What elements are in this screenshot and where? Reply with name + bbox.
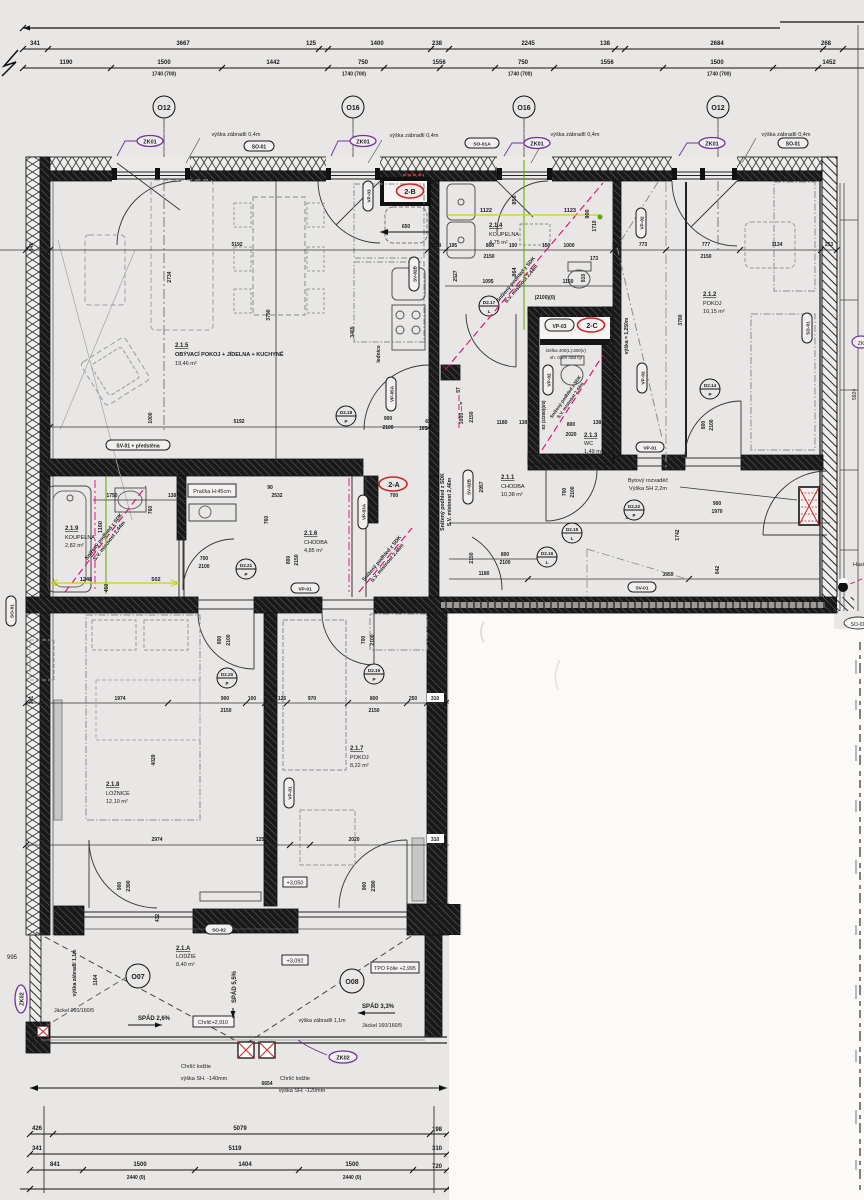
svg-text:3780: 3780 — [678, 314, 684, 325]
svg-text:1500: 1500 — [133, 1162, 147, 1168]
svg-text:238: 238 — [432, 41, 443, 47]
svg-text:970: 970 — [308, 696, 317, 702]
svg-text:L: L — [488, 309, 491, 314]
svg-text:165: 165 — [419, 426, 428, 432]
svg-text:ZK01: ZK01 — [705, 142, 718, 148]
svg-text:výška zábradlí 1,1m: výška zábradlí 1,1m — [298, 1018, 346, 1024]
svg-text:D2.15: D2.15 — [566, 527, 579, 532]
svg-text:ZK01: ZK01 — [356, 140, 369, 146]
svg-text:1180: 1180 — [479, 571, 490, 577]
svg-text:SPÁD 5,5%: SPÁD 5,5% — [231, 970, 238, 1003]
svg-text:1000: 1000 — [563, 243, 574, 249]
svg-text:2100: 2100 — [499, 560, 510, 566]
svg-text:800: 800 — [370, 696, 379, 702]
svg-text:2020: 2020 — [348, 837, 359, 843]
svg-text:1248: 1248 — [80, 577, 92, 583]
svg-text:ZK01: ZK01 — [143, 140, 156, 146]
svg-text:3790: 3790 — [266, 309, 272, 320]
svg-text:90: 90 — [267, 485, 273, 491]
svg-text:864: 864 — [512, 266, 518, 276]
svg-text:VP-03: VP-03 — [553, 324, 567, 330]
svg-text:lednice: lednice — [376, 345, 382, 362]
svg-text:841: 841 — [50, 1162, 61, 1168]
svg-text:1404: 1404 — [238, 1162, 252, 1168]
svg-text:2527: 2527 — [453, 270, 459, 281]
svg-text:8,40 m²: 8,40 m² — [176, 962, 195, 968]
svg-text:SPÁD 3,3%: SPÁD 3,3% — [362, 1003, 395, 1010]
svg-text:Chrlič lodžie: Chrlič lodžie — [181, 1064, 211, 1070]
svg-text:3667: 3667 — [176, 41, 190, 47]
svg-text:2684: 2684 — [710, 41, 724, 47]
svg-text:VP-02: VP-02 — [640, 216, 646, 230]
svg-text:900: 900 — [362, 882, 368, 891]
svg-text:2-B: 2-B — [404, 189, 415, 196]
svg-text:2020: 2020 — [565, 432, 576, 438]
svg-text:VP-03A: VP-03A — [362, 503, 367, 520]
svg-text:ZK01: ZK01 — [530, 142, 543, 148]
svg-text:138: 138 — [600, 41, 611, 47]
svg-text:OBÝVACÍ POKOJ + JÍDELNA + KUCH: OBÝVACÍ POKOJ + JÍDELNA + KUCHYNĚ — [175, 350, 284, 358]
svg-text:2974: 2974 — [151, 837, 162, 843]
svg-text:výška SH. -140mm: výška SH. -140mm — [181, 1076, 228, 1082]
svg-text:341: 341 — [30, 41, 41, 47]
svg-text:1123: 1123 — [564, 208, 576, 214]
svg-text:750: 750 — [358, 60, 369, 66]
svg-text:341: 341 — [32, 1146, 43, 1152]
svg-text:KOUPELNA: KOUPELNA — [65, 535, 95, 541]
svg-text:P: P — [344, 419, 347, 424]
svg-text:900: 900 — [585, 209, 591, 218]
svg-text:VP-01: VP-01 — [298, 587, 312, 593]
svg-text:1095: 1095 — [482, 279, 493, 285]
svg-text:VP-05A: VP-05A — [390, 385, 395, 402]
svg-text:100: 100 — [248, 696, 257, 702]
svg-text:57: 57 — [456, 387, 462, 393]
svg-text:1000 — =: 1000 — = — [459, 402, 465, 425]
svg-text:SV-02B: SV-02B — [413, 265, 418, 282]
svg-text:238: 238 — [433, 243, 442, 249]
svg-text:1190: 1190 — [59, 60, 73, 66]
svg-text:výška zábradlí 0,4m: výška zábradlí 0,4m — [762, 132, 811, 138]
svg-text:125: 125 — [256, 837, 265, 843]
svg-text:P: P — [632, 513, 635, 518]
svg-text:WC: WC — [584, 441, 593, 447]
svg-text:1164: 1164 — [93, 974, 99, 985]
svg-text:1134: 1134 — [772, 242, 783, 248]
svg-text:Jäckel 160/160/5: Jäckel 160/160/5 — [54, 1008, 94, 1014]
svg-text:4,75 m²: 4,75 m² — [489, 240, 508, 246]
svg-text:D2.21: D2.21 — [240, 563, 253, 568]
svg-text:LODŽIE: LODŽIE — [176, 952, 196, 960]
svg-text:2734: 2734 — [167, 271, 173, 282]
svg-text:KOUPELNA: KOUPELNA — [489, 232, 519, 238]
svg-text:SD-01: SD-01 — [806, 321, 812, 335]
svg-text:POKOJ: POKOJ — [703, 301, 722, 307]
svg-text:D2.16: D2.16 — [541, 551, 554, 556]
svg-text:LOŽNICE: LOŽNICE — [106, 789, 130, 797]
svg-text:700: 700 — [361, 636, 367, 645]
svg-text:432: 432 — [155, 914, 161, 923]
svg-text:1556: 1556 — [600, 60, 614, 66]
svg-text:5119: 5119 — [228, 1146, 242, 1152]
svg-text:900: 900 — [221, 696, 230, 702]
svg-text:800: 800 — [286, 556, 292, 565]
svg-text:O12: O12 — [711, 105, 724, 112]
svg-text:1740 (700): 1740 (700) — [707, 72, 732, 78]
svg-text:2440 (0): 2440 (0) — [343, 1175, 362, 1181]
svg-text:1180: 1180 — [497, 420, 508, 426]
svg-text:1740 (700): 1740 (700) — [342, 72, 367, 78]
svg-text:1970: 1970 — [711, 509, 722, 515]
svg-text:900: 900 — [384, 416, 393, 422]
svg-text:2440 (0): 2440 (0) — [127, 1175, 146, 1181]
svg-text:D2.17: D2.17 — [483, 300, 496, 305]
svg-text:2.1.5: 2.1.5 — [175, 343, 189, 349]
svg-text:P: P — [708, 392, 711, 397]
svg-text:450: 450 — [104, 584, 110, 593]
svg-text:900: 900 — [117, 882, 123, 891]
svg-text:250: 250 — [409, 696, 418, 702]
svg-text:2150: 2150 — [469, 411, 475, 422]
svg-text:800: 800 — [217, 636, 223, 645]
svg-text:5192: 5192 — [231, 242, 242, 248]
svg-text:800: 800 — [567, 422, 576, 428]
svg-text:810: 810 — [581, 274, 587, 283]
svg-text:1500: 1500 — [157, 60, 171, 66]
svg-text:2-A: 2-A — [388, 482, 399, 489]
svg-text:výška zábradlí 0,4m: výška zábradlí 0,4m — [551, 132, 600, 138]
svg-text:S.V. místnost 2,46m: S.V. místnost 2,46m — [447, 477, 453, 526]
svg-text:2.1.7: 2.1.7 — [350, 746, 364, 752]
svg-text:CHODBA: CHODBA — [501, 484, 525, 490]
svg-text:2.1.8: 2.1.8 — [106, 782, 120, 788]
svg-text:700: 700 — [200, 556, 209, 562]
svg-text:2532: 2532 — [271, 493, 282, 499]
svg-text:1150: 1150 — [563, 279, 574, 285]
svg-text:138: 138 — [612, 243, 621, 249]
svg-text:L: L — [546, 560, 549, 565]
svg-text:2245: 2245 — [521, 41, 535, 47]
svg-text:341: 341 — [29, 696, 35, 705]
svg-text:12,10 m²: 12,10 m² — [106, 799, 128, 805]
svg-text:SO-02: SO-02 — [212, 928, 226, 934]
svg-text:2150: 2150 — [700, 254, 711, 260]
svg-text:173: 173 — [590, 256, 599, 262]
svg-text:125: 125 — [278, 696, 287, 702]
svg-text:VP-01: VP-01 — [288, 786, 294, 800]
svg-text:2.1.9: 2.1.9 — [65, 526, 79, 532]
svg-text:10,38 m²: 10,38 m² — [501, 492, 523, 498]
svg-text:P: P — [244, 572, 247, 577]
svg-text:2957: 2957 — [479, 481, 485, 492]
svg-text:P: P — [372, 677, 375, 682]
svg-text:310: 310 — [431, 696, 440, 702]
svg-text:8,22 m²: 8,22 m² — [350, 763, 369, 769]
svg-text:268: 268 — [821, 41, 832, 47]
svg-text:CHODBA: CHODBA — [304, 540, 328, 546]
svg-text:2100: 2100 — [226, 634, 232, 645]
svg-text:výška zábradlí 0,4m: výška zábradlí 0,4m — [212, 132, 261, 138]
svg-text:1556: 1556 — [432, 60, 446, 66]
svg-text:2100: 2100 — [382, 425, 393, 431]
svg-text:700: 700 — [562, 488, 568, 497]
svg-text:5192: 5192 — [233, 419, 244, 425]
svg-text:253: 253 — [825, 242, 834, 248]
svg-text:777: 777 — [702, 242, 711, 248]
svg-text:2100: 2100 — [198, 564, 209, 570]
svg-text:SO-01: SO-01 — [851, 622, 864, 628]
svg-text:1500: 1500 — [345, 1162, 359, 1168]
svg-text:2100: 2100 — [370, 634, 376, 645]
svg-text:5079: 5079 — [233, 1126, 247, 1132]
svg-text:výška zábradlí 0,4m: výška zábradlí 0,4m — [390, 133, 439, 139]
svg-text:1,49 m²: 1,49 m² — [584, 449, 603, 455]
svg-text:642: 642 — [715, 566, 721, 575]
svg-text:1740 (700): 1740 (700) — [508, 72, 533, 78]
svg-text:+3,092: +3,092 — [287, 959, 304, 965]
svg-text:výška = 1,250m: výška = 1,250m — [624, 317, 630, 354]
svg-text:750: 750 — [518, 60, 529, 66]
svg-text:SV-01 + předstěna: SV-01 + předstěna — [116, 444, 159, 450]
svg-text:2.1.1: 2.1.1 — [501, 475, 515, 481]
svg-text:2.1.A: 2.1.A — [176, 946, 191, 952]
svg-text:1710: 1710 — [592, 220, 598, 231]
svg-text:D2.14: D2.14 — [704, 383, 717, 388]
svg-text:2100: 2100 — [570, 486, 576, 497]
svg-text:SO-01A: SO-01A — [473, 142, 491, 148]
svg-text:2,82 m²: 2,82 m² — [65, 543, 84, 549]
svg-text:2150: 2150 — [368, 708, 379, 714]
svg-text:760: 760 — [148, 506, 154, 515]
svg-text:4029: 4029 — [151, 754, 157, 765]
svg-text:800: 800 — [501, 552, 510, 558]
svg-text:995: 995 — [7, 955, 18, 961]
svg-text:výška SH. -120mm: výška SH. -120mm — [279, 1088, 326, 1094]
svg-text:SO-01: SO-01 — [10, 604, 16, 618]
svg-text:2150: 2150 — [294, 554, 300, 565]
svg-text:310: 310 — [431, 837, 440, 843]
svg-text:100: 100 — [509, 243, 518, 249]
svg-text:1452: 1452 — [822, 60, 836, 66]
svg-text:650: 650 — [402, 224, 411, 230]
svg-text:L: L — [571, 536, 574, 541]
svg-text:1122: 1122 — [480, 208, 492, 214]
svg-text:SV-01: SV-01 — [635, 586, 648, 592]
svg-text:83 (1/200)(I/0): 83 (1/200)(I/0) — [541, 400, 546, 430]
svg-text:O16: O16 — [517, 105, 530, 112]
svg-text:sh. 0,9m nad čp: sh. 0,9m nad čp — [550, 355, 583, 360]
svg-text:2150: 2150 — [220, 708, 231, 714]
svg-text:SO-01: SO-01 — [786, 142, 801, 148]
svg-text:VP-03: VP-03 — [367, 189, 373, 203]
svg-text:Chrlič+2,910: Chrlič+2,910 — [198, 1020, 228, 1026]
svg-text:2150: 2150 — [483, 254, 494, 260]
svg-text:1750: 1750 — [106, 493, 117, 499]
svg-text:1740 (700): 1740 (700) — [152, 72, 177, 78]
svg-text:3465: 3465 — [350, 326, 356, 337]
svg-text:2100: 2100 — [709, 419, 715, 430]
svg-text:P: P — [225, 681, 228, 686]
svg-text:760: 760 — [264, 516, 270, 525]
svg-text:SV-02B: SV-02B — [467, 478, 472, 495]
svg-text:Výška SH 2,2m: Výška SH 2,2m — [629, 486, 667, 492]
svg-text:Bytový rozvaděč: Bytový rozvaděč — [628, 478, 669, 484]
svg-text:195: 195 — [449, 243, 458, 249]
svg-text:O16: O16 — [346, 105, 359, 112]
svg-text:ZK02: ZK02 — [20, 992, 26, 1005]
svg-text:O08: O08 — [345, 979, 358, 986]
svg-text:D2.20: D2.20 — [221, 672, 234, 677]
svg-text:Hasi: Hasi — [853, 562, 864, 568]
svg-text:138: 138 — [519, 420, 528, 426]
svg-text:800: 800 — [701, 421, 707, 430]
svg-text:2390: 2390 — [126, 880, 132, 891]
svg-text:1742: 1742 — [675, 529, 681, 540]
svg-text:1400: 1400 — [370, 41, 384, 47]
svg-text:SPÁD 2,6%: SPÁD 2,6% — [138, 1015, 171, 1022]
svg-text:773: 773 — [639, 242, 648, 248]
svg-text:65: 65 — [425, 419, 431, 425]
svg-text:426: 426 — [32, 1126, 43, 1132]
svg-text:2.1.2: 2.1.2 — [703, 292, 717, 298]
svg-text:VP-02: VP-02 — [641, 371, 647, 385]
svg-text:(2100)(0): (2100)(0) — [535, 295, 556, 301]
svg-text:1160: 1160 — [98, 521, 104, 533]
svg-text:VP-02: VP-02 — [547, 373, 553, 387]
svg-text:2-C: 2-C — [586, 323, 597, 330]
svg-text:1500: 1500 — [710, 60, 724, 66]
svg-text:341: 341 — [29, 243, 35, 252]
svg-text:6654: 6654 — [261, 1081, 272, 1087]
svg-text:Snížený podhled z SDK: Snížený podhled z SDK — [440, 473, 446, 531]
svg-text:Pračka H:45cm: Pračka H:45cm — [193, 489, 231, 495]
svg-text:D2.18: D2.18 — [340, 410, 353, 415]
svg-text:150: 150 — [542, 243, 551, 249]
svg-text:Chrlič lodžie: Chrlič lodžie — [280, 1076, 310, 1082]
svg-text:ZK02: ZK02 — [336, 1056, 349, 1062]
svg-text:SO-01: SO-01 — [252, 145, 267, 151]
svg-text:900: 900 — [713, 501, 722, 507]
svg-text:4,85 m²: 4,85 m² — [304, 548, 323, 554]
svg-text:POKOJ: POKOJ — [350, 755, 369, 761]
svg-text:1974: 1974 — [114, 696, 125, 702]
svg-text:2.1.3: 2.1.3 — [584, 433, 598, 439]
svg-text:VP-01: VP-01 — [643, 446, 657, 452]
svg-text:D2.19: D2.19 — [368, 668, 381, 673]
svg-text:138: 138 — [168, 493, 177, 499]
svg-text:2.1.4: 2.1.4 — [489, 223, 503, 229]
svg-text:1000: 1000 — [148, 412, 154, 423]
svg-text:19,46 m²: 19,46 m² — [175, 361, 197, 367]
svg-text:1442: 1442 — [266, 60, 280, 66]
svg-text:Jäckel 160/160/5: Jäckel 160/160/5 — [362, 1023, 402, 1029]
svg-text:výška zábradlí 1,1m: výška zábradlí 1,1m — [72, 949, 78, 997]
svg-text:125: 125 — [306, 41, 317, 47]
svg-text:+3,050: +3,050 — [287, 881, 304, 887]
svg-text:700: 700 — [390, 493, 399, 499]
svg-text:138: 138 — [593, 420, 602, 426]
svg-text:2150: 2150 — [469, 552, 475, 563]
svg-text:856: 856 — [512, 195, 518, 204]
svg-text:O07: O07 — [131, 974, 144, 981]
svg-text:2.1.6: 2.1.6 — [304, 531, 318, 537]
svg-text:Délka 400(L):300(v): Délka 400(L):300(v) — [546, 348, 586, 353]
svg-text:502: 502 — [151, 577, 160, 583]
svg-text:10,15 m²: 10,15 m² — [703, 309, 725, 315]
svg-text:TPO Fólie +2,995: TPO Fólie +2,995 — [374, 966, 416, 972]
svg-text:O12: O12 — [157, 105, 170, 112]
svg-text:ZK: ZK — [858, 341, 864, 347]
svg-text:D2.22: D2.22 — [628, 504, 641, 509]
svg-text:2390: 2390 — [371, 880, 377, 891]
svg-text:5924: 5924 — [852, 389, 858, 400]
